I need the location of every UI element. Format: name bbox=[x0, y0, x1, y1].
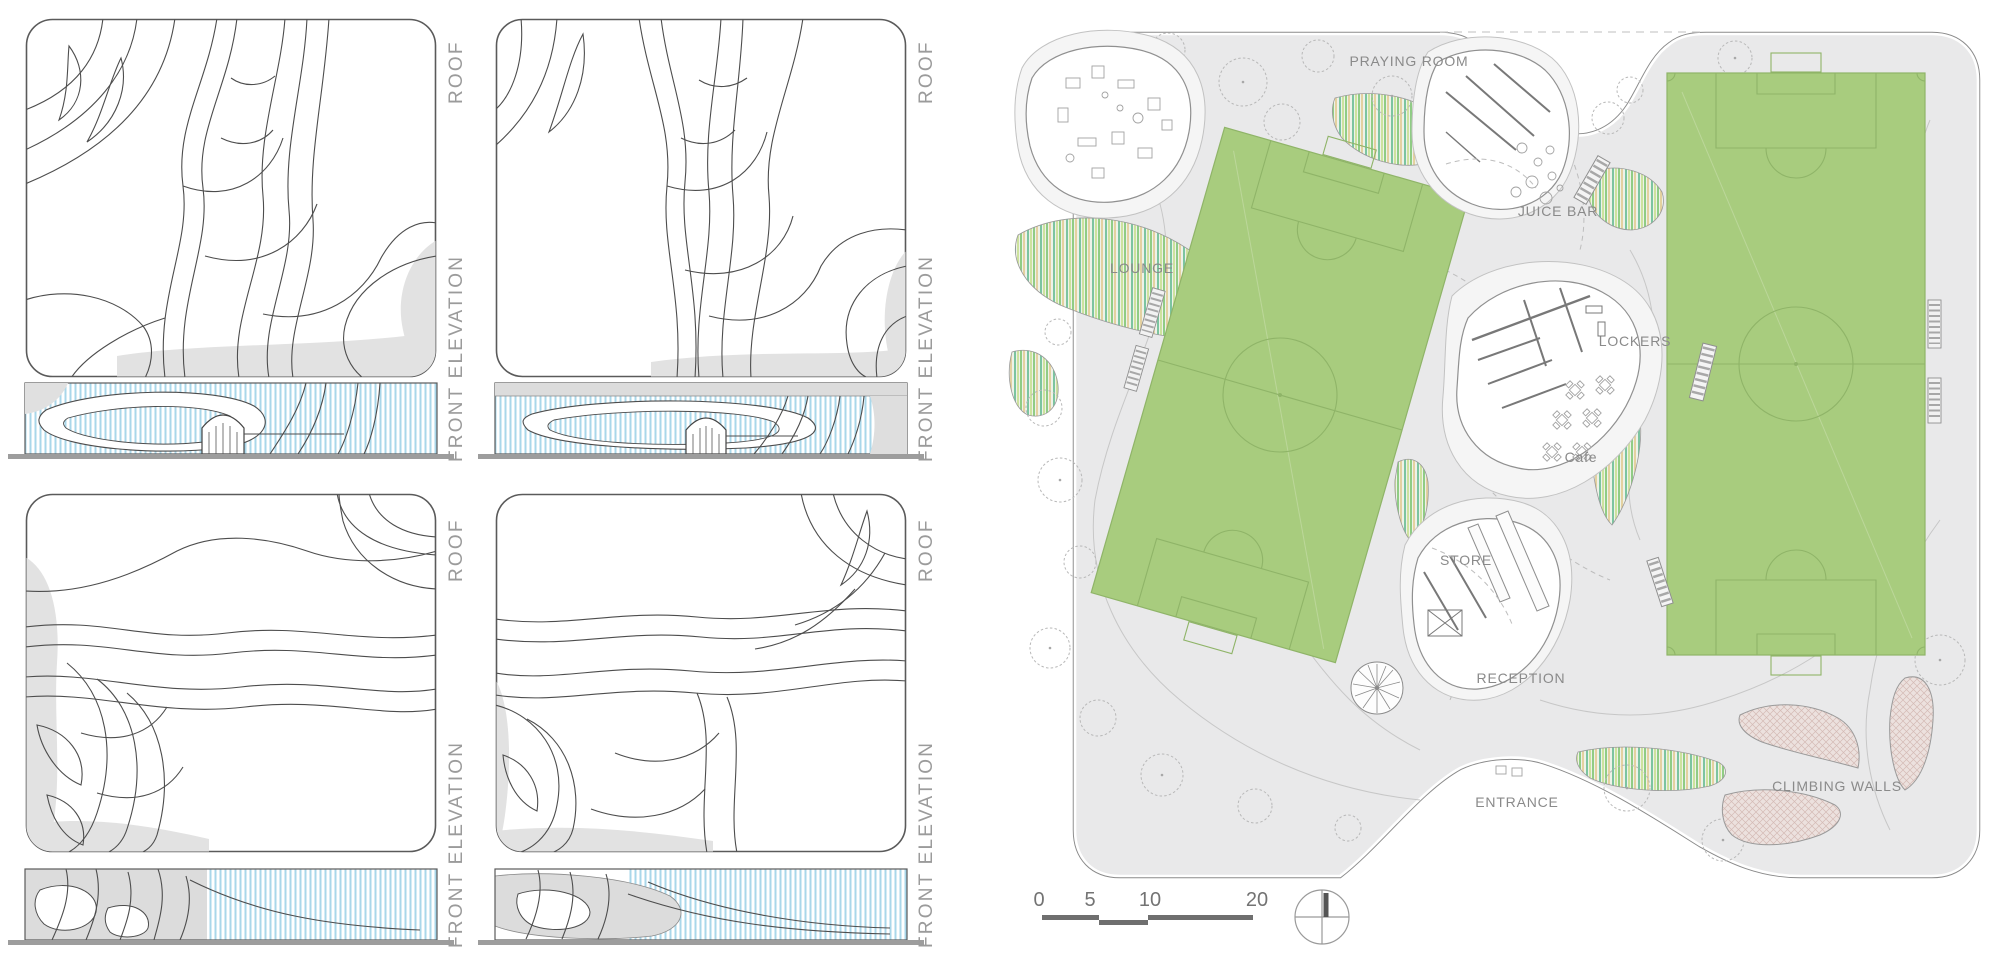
roof-label: ROOF bbox=[916, 40, 938, 104]
panel-top-right: ROOF FRONT ELEVATION bbox=[470, 0, 940, 483]
panel-bottom-right: ROOF FRONT ELEVATION bbox=[470, 478, 940, 961]
front-elevation-drawing bbox=[8, 868, 454, 950]
scale-bar: 0 5 10 20 bbox=[1033, 889, 1268, 925]
roof-label: ROOF bbox=[916, 518, 938, 582]
roof-plan-drawing bbox=[25, 493, 437, 853]
label-juice-bar: JUICE BAR bbox=[1518, 203, 1598, 219]
site-plan: PRAYING ROOM JUICE BAR LOUNGE LOCKERS Ca… bbox=[1000, 0, 2000, 963]
roof-label: ROOF bbox=[446, 518, 468, 582]
detailed-tree-icon bbox=[1351, 662, 1403, 714]
roof-plan-drawing bbox=[495, 493, 907, 853]
label-lounge: LOUNGE bbox=[1110, 260, 1174, 276]
ground-line bbox=[8, 454, 454, 459]
label-cafe: Cafe bbox=[1565, 449, 1598, 465]
front-elevation-drawing bbox=[8, 382, 454, 464]
label-lockers: LOCKERS bbox=[1599, 333, 1672, 349]
ground-line bbox=[478, 940, 924, 945]
roof-plan-drawing bbox=[25, 18, 437, 378]
label-reception: RECEPTION bbox=[1477, 670, 1566, 686]
elevation-gray-band bbox=[495, 383, 907, 396]
elevation-gray-patch bbox=[870, 396, 907, 454]
ground-line bbox=[8, 940, 454, 945]
front-elevation-drawing bbox=[478, 868, 924, 950]
front-elevation-label: FRONT ELEVATION bbox=[446, 255, 468, 462]
front-elevation-label: FRONT ELEVATION bbox=[446, 741, 468, 948]
architectural-drawing-sheet: { "panels": [ {"id":"top-left","roof_lab… bbox=[0, 0, 2000, 963]
label-praying-room: PRAYING ROOM bbox=[1349, 53, 1468, 69]
scale-tick-10: 10 bbox=[1139, 889, 1161, 911]
label-climbing-walls: CLIMBING WALLS bbox=[1772, 778, 1902, 794]
elevation-blob bbox=[35, 886, 96, 931]
front-elevation-drawing bbox=[478, 382, 924, 464]
north-arrow-icon bbox=[1295, 890, 1349, 944]
panel-top-left: ROOF FRONT ELEVATION bbox=[0, 0, 470, 483]
entrance-stalls bbox=[1496, 766, 1522, 776]
scale-tick-5: 5 bbox=[1084, 889, 1095, 911]
roof-label: ROOF bbox=[446, 40, 468, 104]
scale-tick-0: 0 bbox=[1033, 889, 1044, 911]
front-elevation-label: FRONT ELEVATION bbox=[916, 741, 938, 948]
label-entrance: ENTRANCE bbox=[1475, 794, 1558, 810]
ground-line bbox=[478, 454, 924, 459]
front-elevation-label: FRONT ELEVATION bbox=[916, 255, 938, 462]
scale-tick-20: 20 bbox=[1246, 889, 1268, 911]
label-store: STORE bbox=[1440, 552, 1492, 568]
building-lounge bbox=[1015, 30, 1205, 218]
panel-bottom-left: ROOF FRONT ELEVATION bbox=[0, 478, 470, 961]
roof-plan-drawing bbox=[495, 18, 907, 378]
